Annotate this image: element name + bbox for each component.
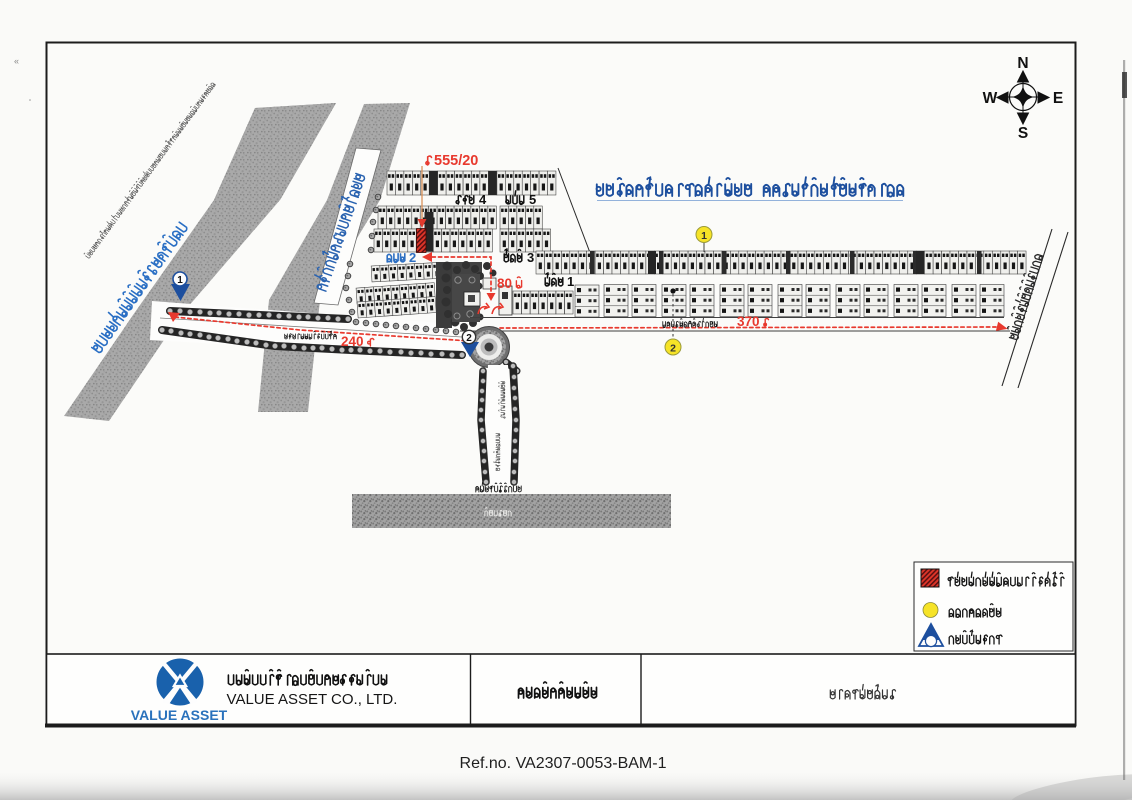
svg-text:VALUE ASSET CO., LTD.: VALUE ASSET CO., LTD. xyxy=(227,691,398,708)
svg-text:«: « xyxy=(14,56,19,66)
svg-text:2: 2 xyxy=(466,333,472,344)
svg-text:N: N xyxy=(1017,55,1028,72)
svg-text:555/20: 555/20 xyxy=(434,153,478,169)
svg-text:1: 1 xyxy=(567,274,574,289)
svg-text:VALUE ASSET: VALUE ASSET xyxy=(131,707,228,723)
svg-text:80: 80 xyxy=(497,276,512,291)
svg-text:2: 2 xyxy=(670,343,676,355)
svg-text:370: 370 xyxy=(737,314,760,329)
svg-text:1: 1 xyxy=(701,230,707,242)
svg-text:Ref.no. VA2307-0053-BAM-1: Ref.no. VA2307-0053-BAM-1 xyxy=(460,755,667,772)
svg-text:W: W xyxy=(983,90,998,107)
svg-text:E: E xyxy=(1053,90,1063,107)
svg-text:3: 3 xyxy=(527,250,534,265)
svg-text:2: 2 xyxy=(409,250,416,265)
svg-text:240: 240 xyxy=(341,334,364,349)
svg-text:1: 1 xyxy=(177,275,183,286)
svg-text:5: 5 xyxy=(529,192,536,207)
svg-text:S: S xyxy=(1018,125,1028,142)
svg-text:4: 4 xyxy=(479,192,487,207)
